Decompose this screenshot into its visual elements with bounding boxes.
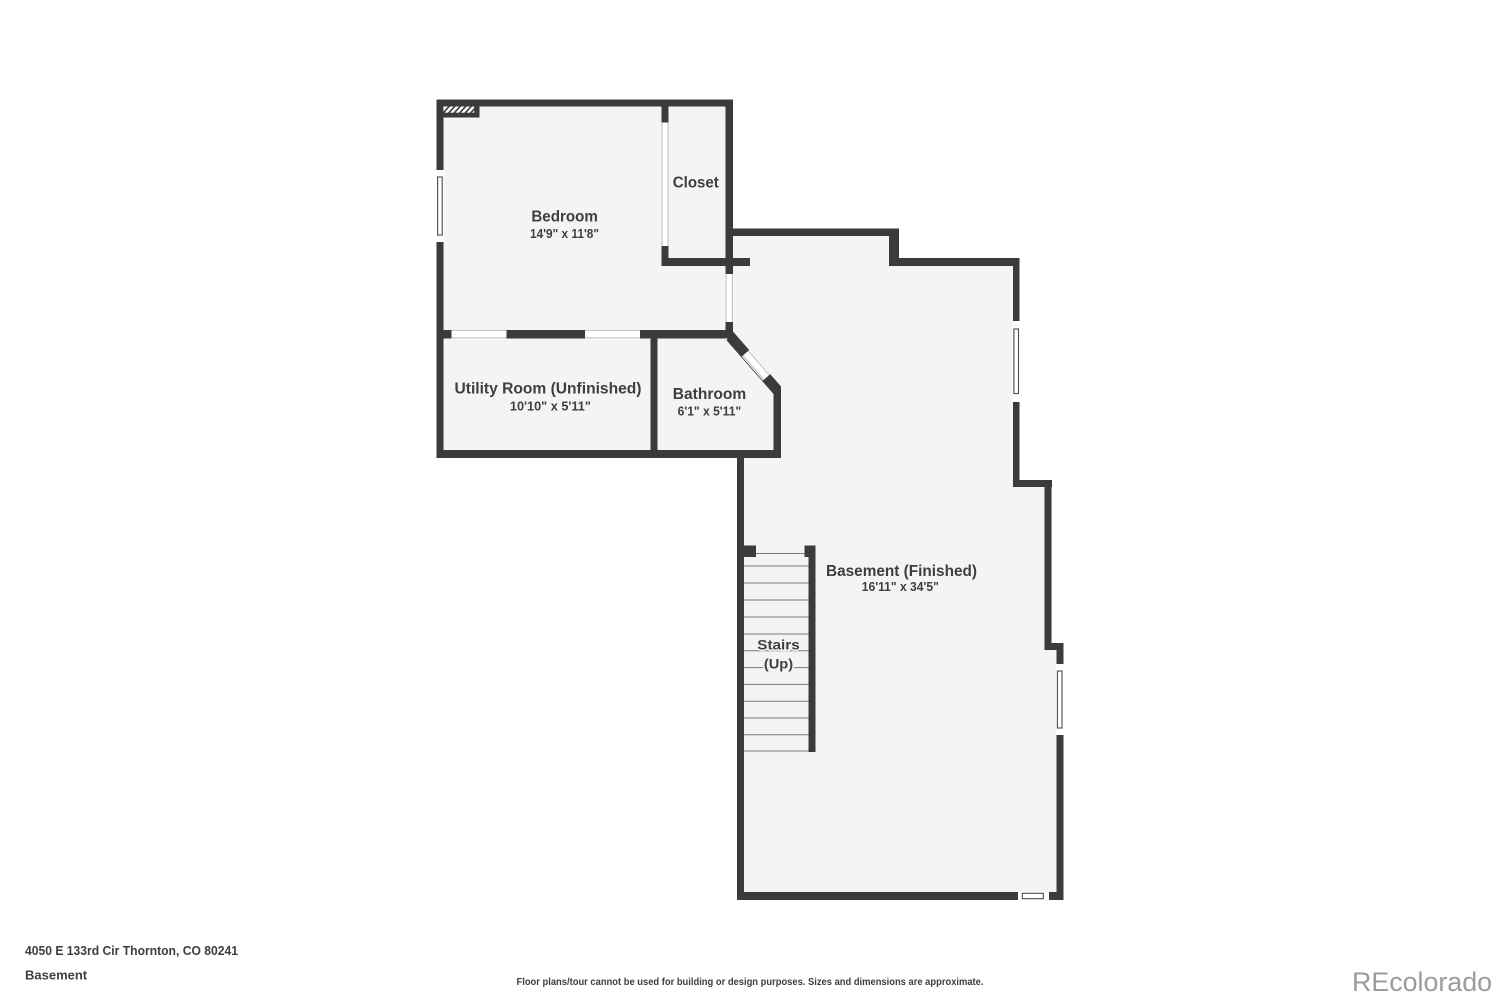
svg-text:16'11" x 34'5": 16'11" x 34'5" (862, 579, 939, 594)
svg-text:REcolorado: REcolorado (1352, 967, 1492, 997)
svg-text:14'9" x 11'8": 14'9" x 11'8" (530, 226, 599, 241)
svg-text:Basement (Finished): Basement (Finished) (826, 563, 977, 580)
svg-text:Bedroom: Bedroom (531, 209, 598, 226)
svg-text:4050 E 133rd Cir Thornton, CO: 4050 E 133rd Cir Thornton, CO 80241 (25, 943, 238, 958)
svg-text:10'10" x 5'11": 10'10" x 5'11" (510, 399, 591, 414)
svg-text:(Up): (Up) (764, 657, 793, 672)
svg-text:Basement: Basement (25, 968, 88, 983)
svg-text:Closet: Closet (673, 174, 719, 191)
svg-text:Stairs: Stairs (757, 638, 800, 653)
svg-text:Floor plans/tour cannot be use: Floor plans/tour cannot be used for buil… (517, 977, 984, 988)
svg-text:6'1" x 5'11": 6'1" x 5'11" (678, 404, 742, 419)
svg-text:Utility Room (Unfinished): Utility Room (Unfinished) (455, 380, 642, 397)
svg-text:Bathroom: Bathroom (673, 386, 747, 403)
